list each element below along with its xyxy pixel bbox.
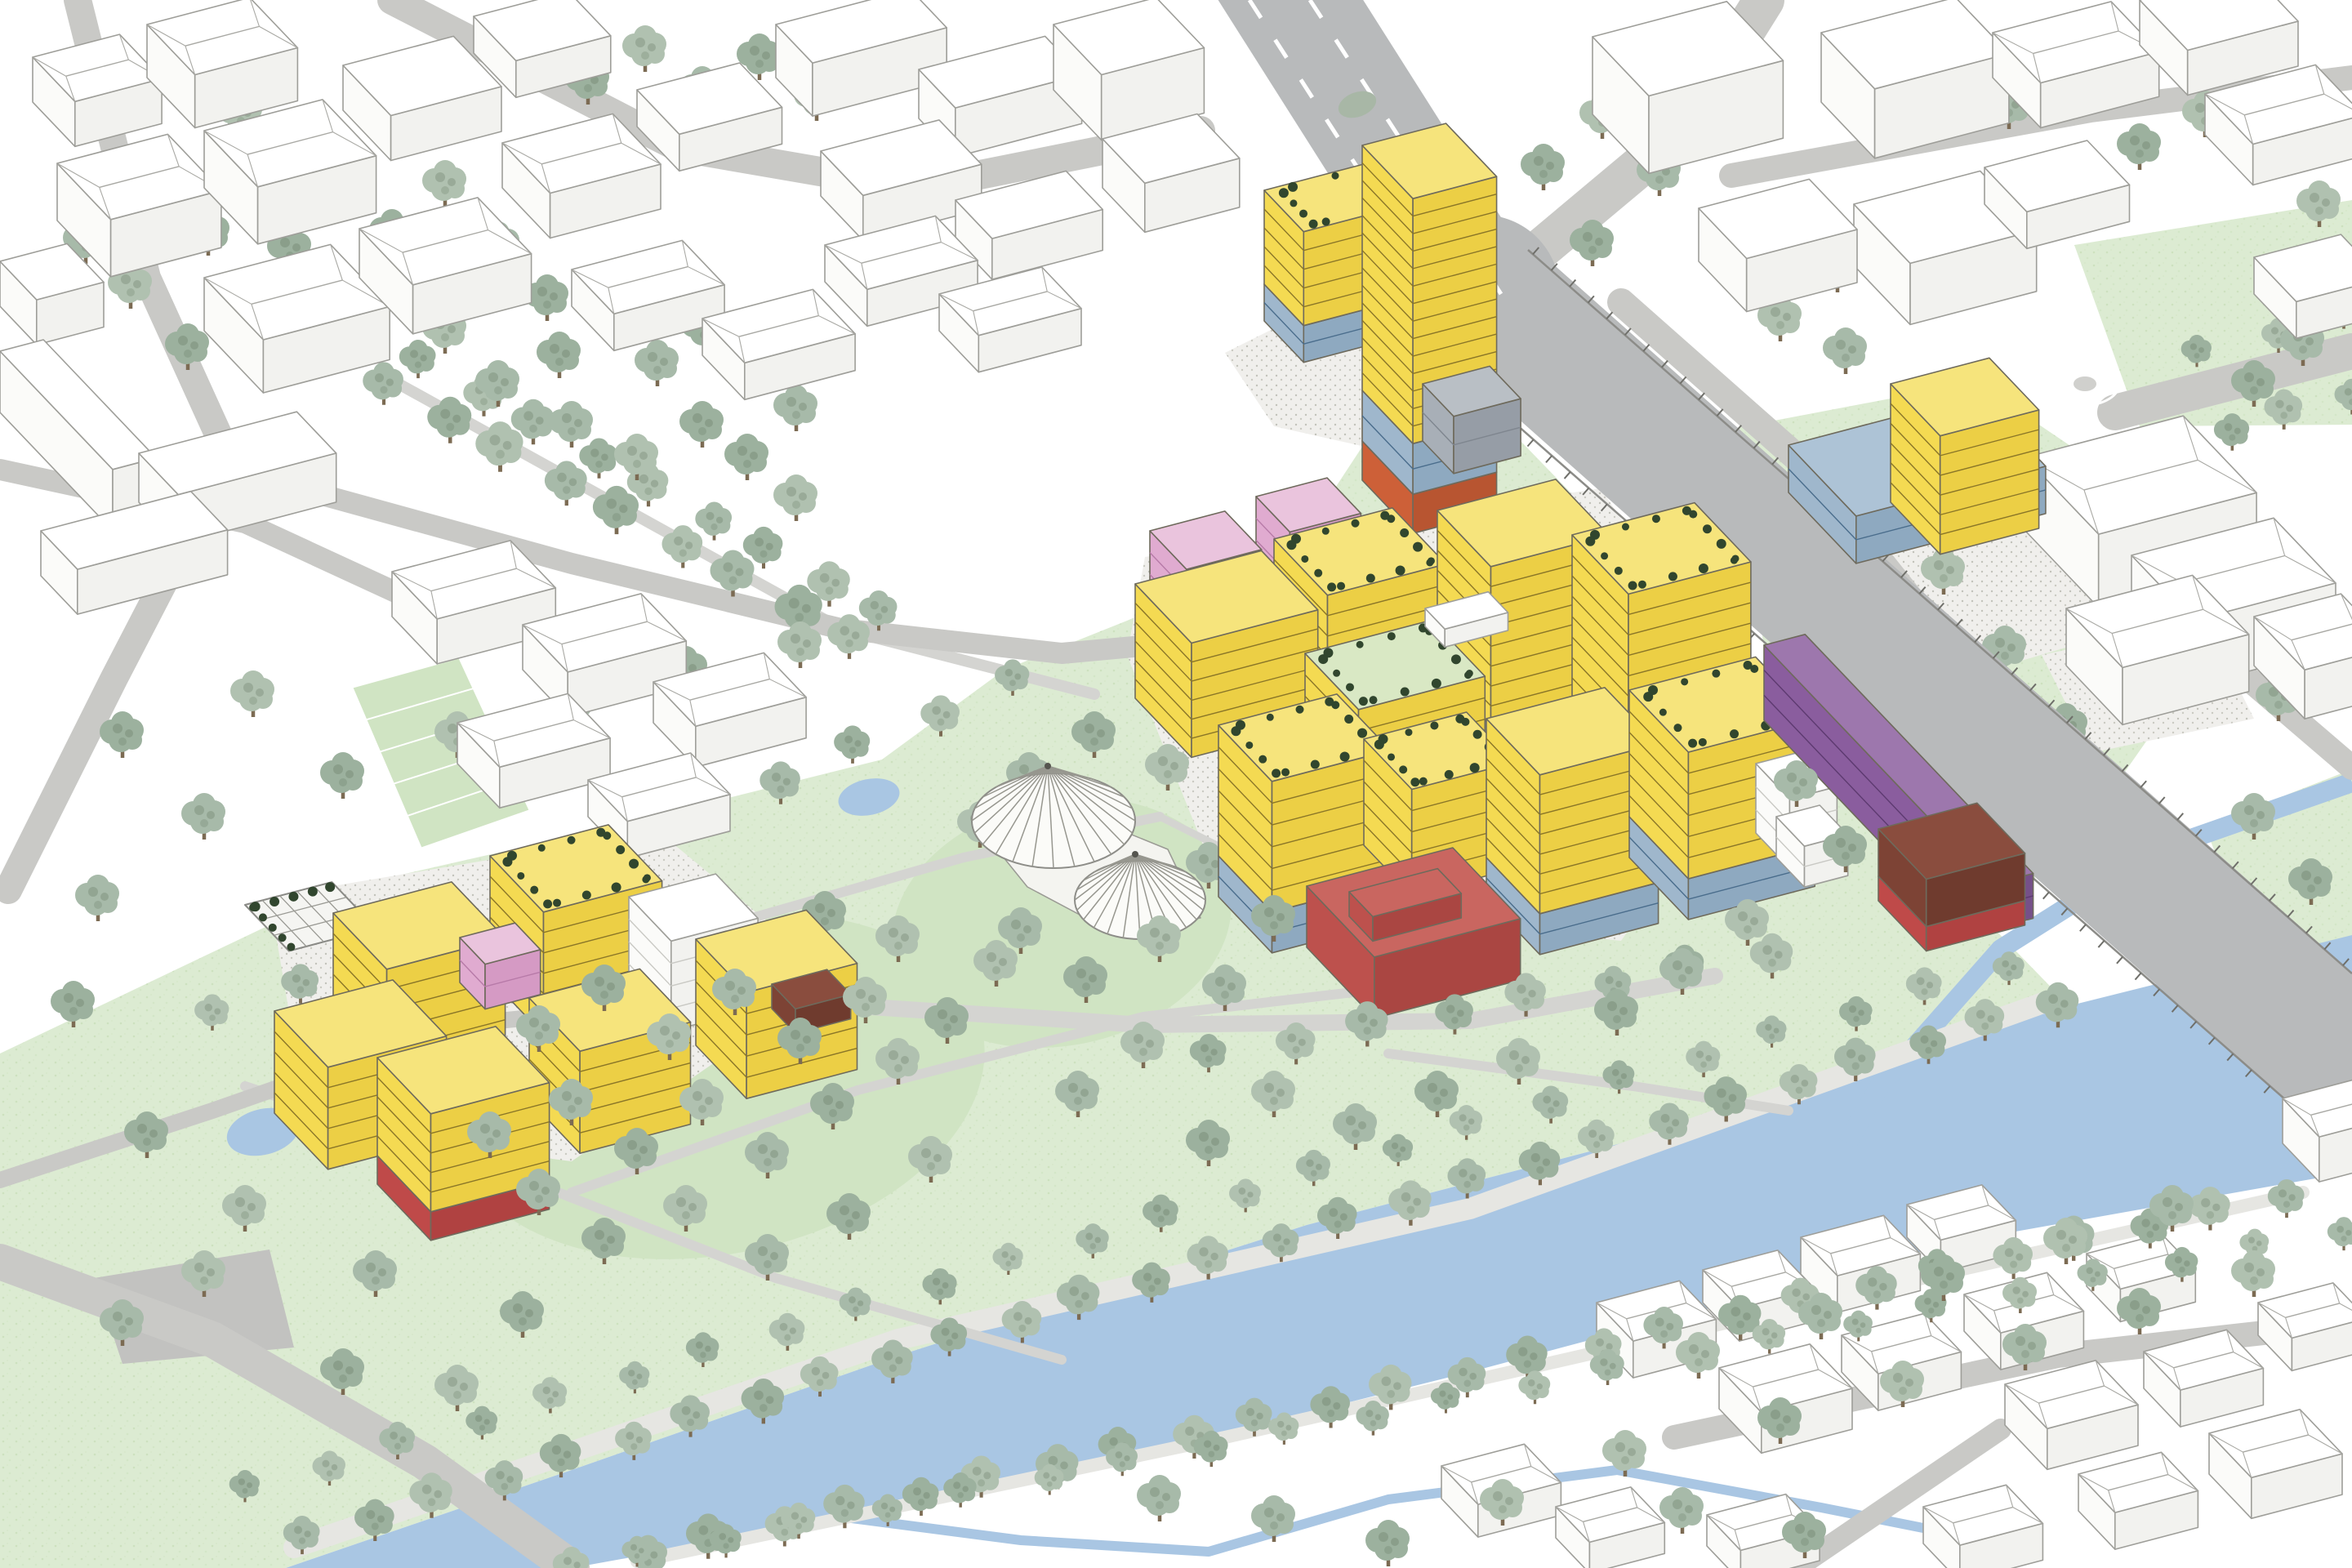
proposed-building-tower (1362, 123, 1497, 533)
proposed-building-ne-block (1891, 358, 2039, 554)
masterplan-canvas (0, 0, 2352, 1568)
proposed-building-west-w6 (377, 1027, 550, 1241)
masterplan-view (0, 0, 2352, 1568)
